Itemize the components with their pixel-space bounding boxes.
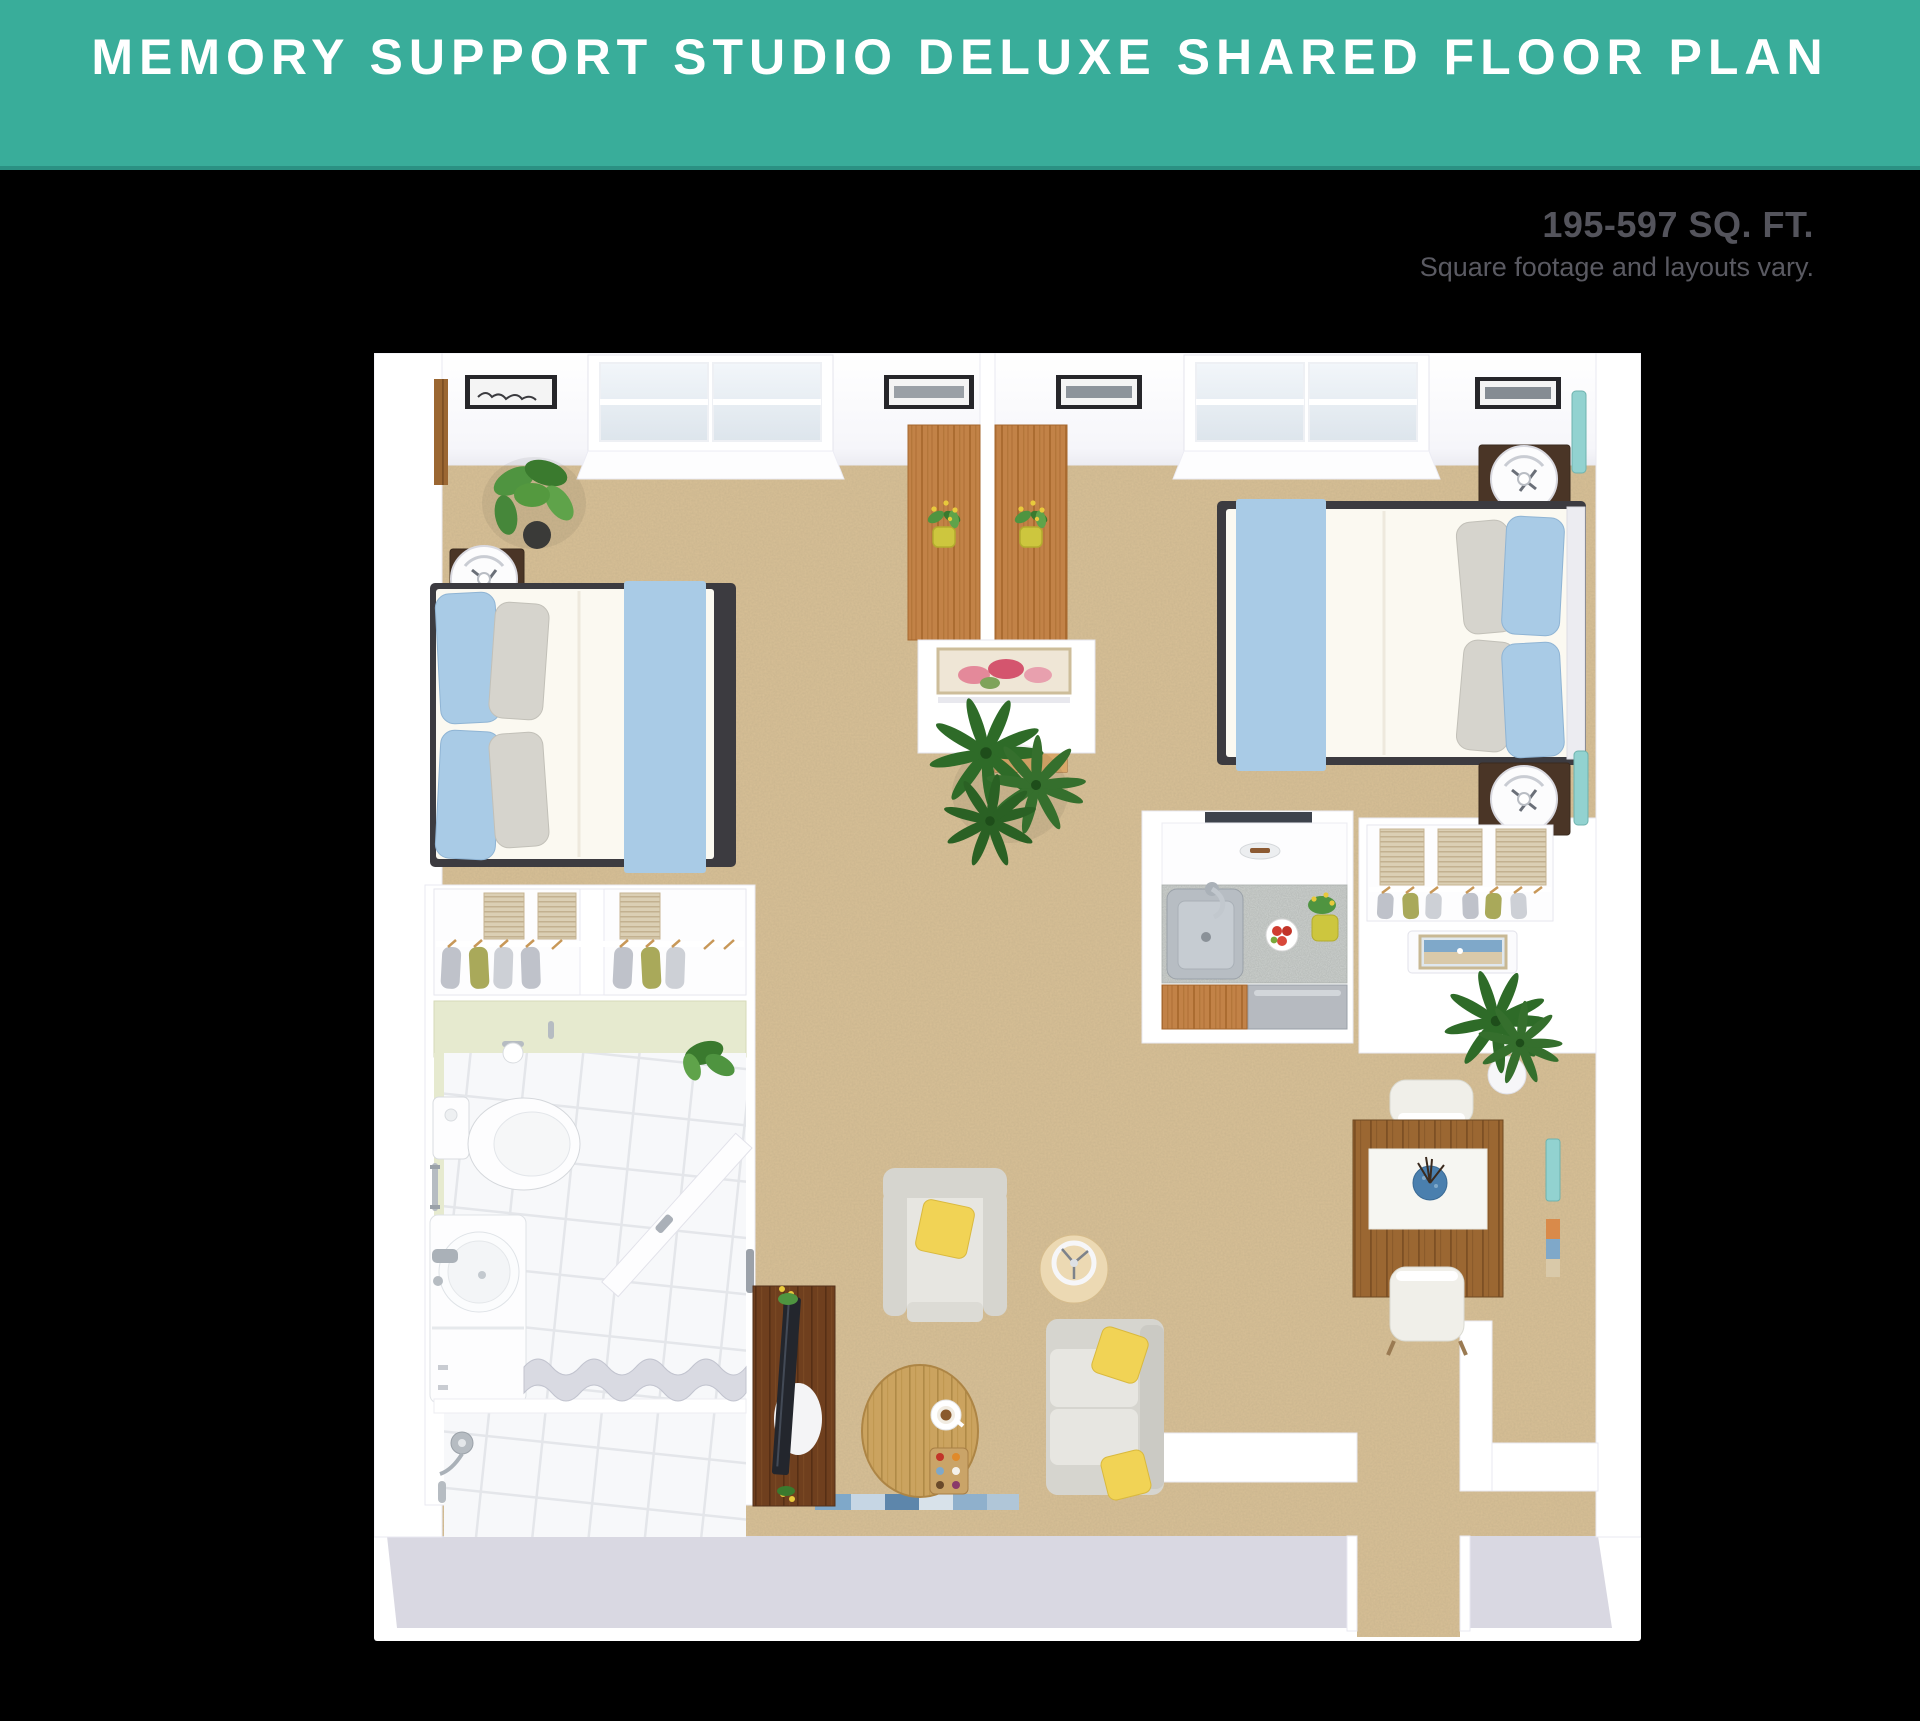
media-cabinet [1408,931,1517,973]
wicker-basket [1380,829,1424,885]
wicker-basket [538,893,576,939]
side-table-lamp [1040,1235,1108,1303]
wicker-basket [484,893,524,939]
picture-frame [1056,375,1142,409]
faucet [432,1249,458,1263]
coffee-table [862,1365,978,1497]
snack-tray [930,1448,968,1494]
pillow-gray [488,601,550,720]
entry-wall-right [1492,1443,1598,1491]
title-banner: MEMORY SUPPORT STUDIO DELUXE SHARED FLOO… [0,0,1920,170]
floor-plan-card [374,353,1641,1641]
fruit-bowl [1266,919,1298,951]
bed-right [1217,499,1586,771]
kitchen-sink [1167,882,1243,979]
kitchenette [1162,812,1347,1029]
wicker-basket [1438,829,1482,885]
headboard [1567,507,1585,759]
sofa [1046,1319,1164,1502]
pillow-gray [488,731,550,848]
vanity-sink [430,1215,526,1403]
table-lamp [1491,766,1557,832]
closet-left [434,889,746,995]
wall-cabinet [434,379,448,485]
glass-decor [1574,751,1588,825]
bed-runner [1236,499,1326,771]
window-left [577,355,844,479]
nightstand [1479,763,1570,835]
entry-wall-stub [1460,1321,1492,1491]
picture-frame [1475,377,1561,409]
wicker-basket [1496,829,1546,885]
divider-console [918,640,1095,753]
entry-corridor-floor [1357,1437,1460,1637]
square-footage-label: 195-597 SQ. FT. [1420,205,1814,245]
right-wall [1596,353,1641,1537]
pillow-blue [1501,516,1565,637]
picture-frame [465,375,557,409]
counter-back-edge [1205,812,1312,823]
entry-wall-left [1157,1433,1357,1482]
bathroom [430,1001,754,1537]
appliance-front [1248,985,1347,1029]
yellow-pillow [914,1198,976,1260]
disclaimer-text: Square footage and layouts vary. [1420,253,1814,283]
armchair [883,1168,1007,1322]
cabinet-front [1162,985,1247,1029]
dining-chair [1390,1080,1473,1125]
entry-jamb-right [1460,1536,1470,1631]
page-title: MEMORY SUPPORT STUDIO DELUXE SHARED FLOO… [91,28,1828,86]
tv-console [753,1286,835,1506]
pillow-blue [1501,642,1565,759]
wicker-basket [620,893,660,939]
glass-decor [1572,391,1586,473]
floor-plan-image [374,353,1641,1641]
bed-left [430,581,736,873]
entry-jamb-left [1347,1536,1357,1631]
divider-wall [980,353,995,640]
picture-frame [884,375,974,409]
plan-details: 195-597 SQ. FT. Square footage and layou… [1420,205,1814,282]
window-right [1173,355,1440,479]
bed-runner [624,581,706,873]
